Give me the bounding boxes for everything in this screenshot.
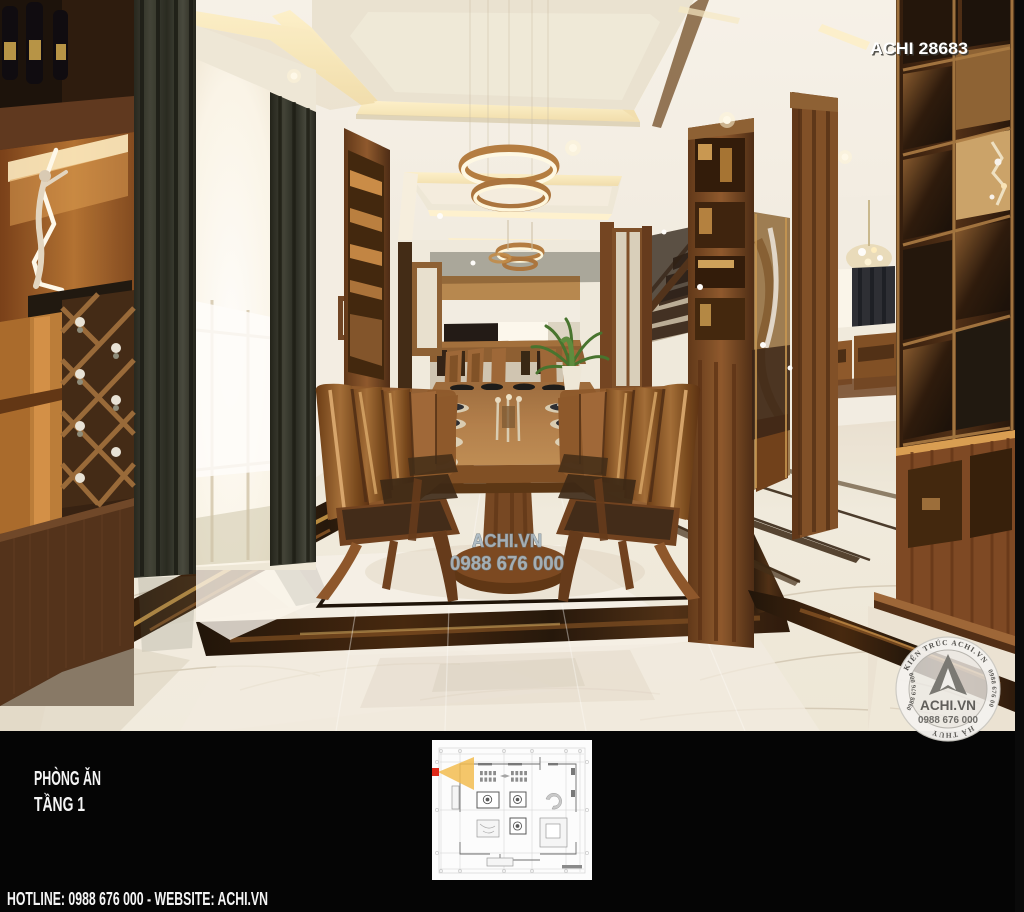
svg-text:TẦNG 1: TẦNG 1: [34, 793, 85, 816]
svg-text:0988 676 000: 0988 676 000: [450, 553, 564, 575]
svg-text:PHÒNG ĂN: PHÒNG ĂN: [34, 766, 101, 790]
svg-text:ACHI 28683: ACHI 28683: [870, 39, 968, 58]
svg-text:ACHI.VN: ACHI.VN: [920, 697, 976, 713]
svg-text:HOTLINE: 0988 676 000 - WEBSIT: HOTLINE: 0988 676 000 - WEBSITE: ACHI.VN: [7, 889, 268, 909]
svg-text:0988 676 000: 0988 676 000: [918, 715, 978, 726]
svg-text:ACHI.VN: ACHI.VN: [472, 531, 542, 551]
